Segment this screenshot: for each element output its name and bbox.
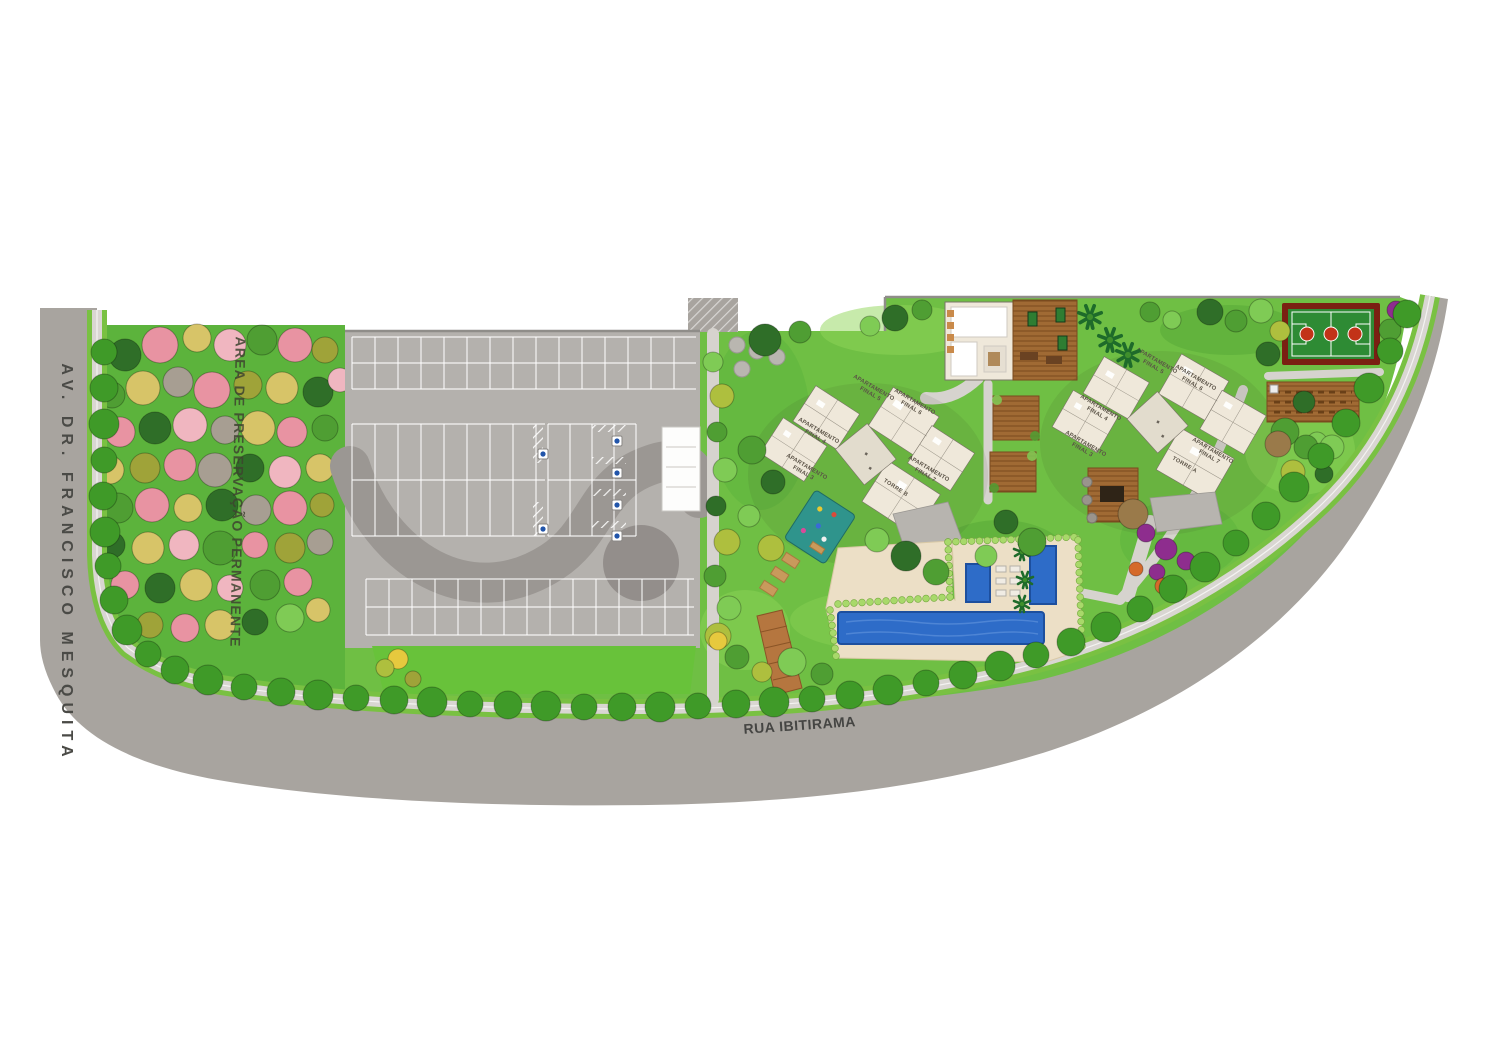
pergola xyxy=(992,395,1040,441)
basketball-court xyxy=(1282,303,1380,365)
entrance-ramp xyxy=(688,298,738,332)
site-plan-canvas: AREA DE PRESERVAÇÃO PERMANENTE xyxy=(0,0,1500,1050)
kids-pool xyxy=(966,564,990,602)
pergola xyxy=(989,451,1037,493)
game-table xyxy=(1058,336,1067,350)
game-table xyxy=(1028,312,1037,326)
parking-lot xyxy=(345,330,700,648)
garage-entrance xyxy=(662,427,700,511)
lap-pool xyxy=(838,612,1044,644)
lawn-strip xyxy=(372,646,696,694)
site-plan: AREA DE PRESERVAÇÃO PERMANENTE xyxy=(0,0,1500,1050)
games-deck xyxy=(1013,300,1077,380)
pool-area xyxy=(826,534,1085,662)
table xyxy=(1100,486,1124,502)
game-table xyxy=(1056,308,1065,322)
street-label-left: AV. DR. FRANCISCO MESQUITA xyxy=(58,363,75,762)
clubhouse xyxy=(945,302,1013,380)
